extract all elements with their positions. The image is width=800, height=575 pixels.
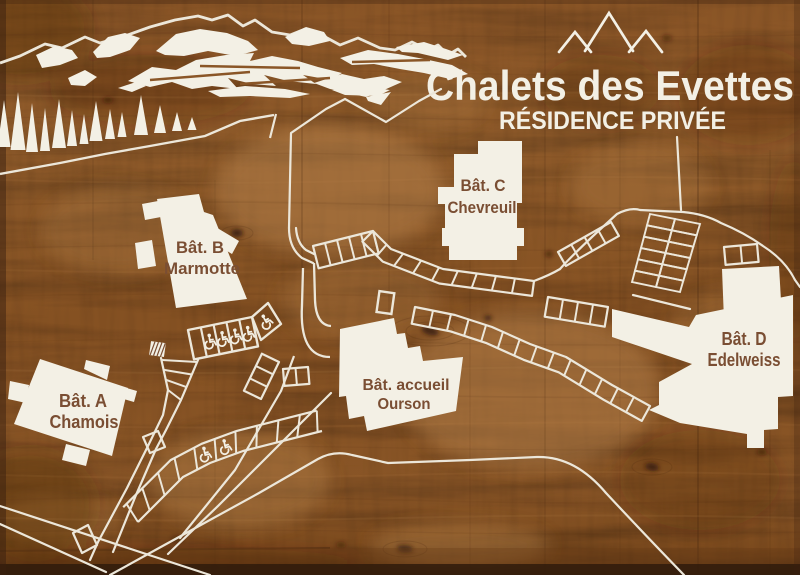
svg-text:Edelweiss: Edelweiss [708, 350, 781, 370]
svg-text:Bât. accueil: Bât. accueil [363, 377, 450, 394]
svg-text:Chamois: Chamois [50, 412, 119, 432]
svg-text:Bât. C: Bât. C [461, 176, 506, 195]
svg-text:Bât. A: Bât. A [59, 391, 107, 411]
svg-text:Marmotte: Marmotte [164, 259, 240, 278]
svg-text:Ourson: Ourson [378, 396, 431, 413]
svg-text:Bât. D: Bât. D [722, 329, 767, 349]
svg-text:Bât. B: Bât. B [176, 238, 224, 257]
svg-text:RÉSIDENCE PRIVÉE: RÉSIDENCE PRIVÉE [499, 106, 726, 135]
svg-text:Chevreuil: Chevreuil [448, 198, 517, 217]
svg-text:Chalets des Evettes: Chalets des Evettes [426, 62, 794, 109]
